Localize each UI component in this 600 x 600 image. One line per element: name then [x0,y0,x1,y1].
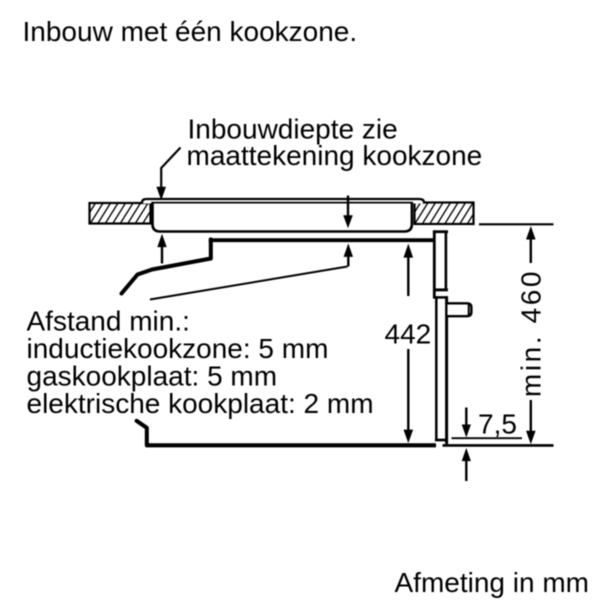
svg-text:elektrische kookplaat: 2 mm: elektrische kookplaat: 2 mm [27,388,374,419]
svg-text:Afstand min.:: Afstand min.: [27,306,190,337]
svg-text:min. 460: min. 460 [516,269,547,397]
svg-text:gaskookplaat: 5 mm: gaskookplaat: 5 mm [27,361,278,392]
svg-text:maattekening kookzone: maattekening kookzone [187,140,483,171]
svg-text:442: 442 [385,319,432,350]
svg-text:7,5: 7,5 [478,409,517,440]
svg-text:Inbouw met één kookzone.: Inbouw met één kookzone. [23,16,358,47]
svg-text:Afmeting in mm: Afmeting in mm [395,567,590,598]
svg-text:inductiekookzone: 5 mm: inductiekookzone: 5 mm [27,333,329,364]
